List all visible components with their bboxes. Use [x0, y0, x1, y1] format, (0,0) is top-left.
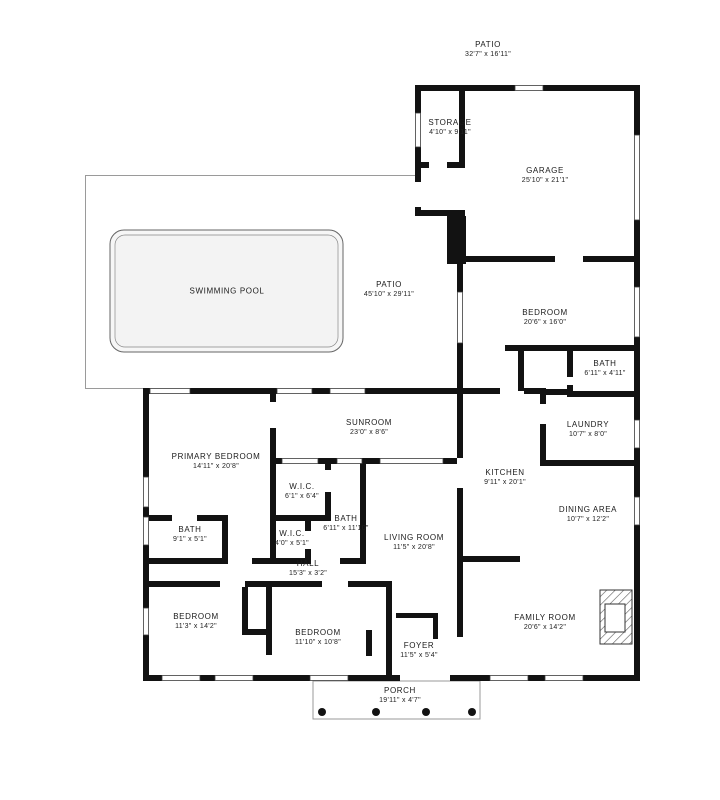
floor-plan-drawing	[0, 0, 720, 800]
porch-column	[372, 708, 380, 716]
porch-column	[468, 708, 476, 716]
porch-column	[422, 708, 430, 716]
fireplace-icon	[600, 590, 632, 644]
swimming-pool-shape	[110, 230, 343, 352]
porch-column	[318, 708, 326, 716]
floor-plan-page: PATIO32'7" x 16'11"STORAGE4'10" x 9'11"G…	[0, 0, 720, 800]
walls-layer	[143, 85, 640, 681]
porch-shape	[313, 681, 480, 719]
